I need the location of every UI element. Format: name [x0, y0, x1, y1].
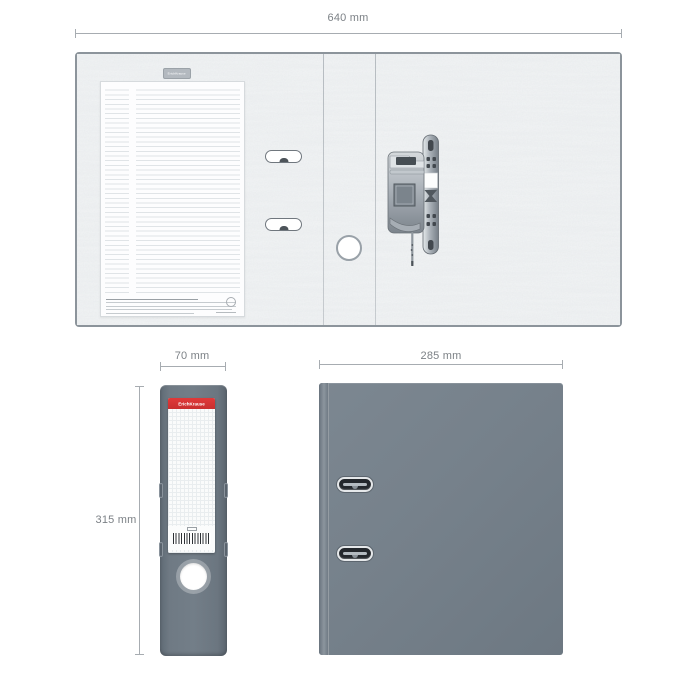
dimension-tick [135, 654, 144, 655]
fine-print [106, 299, 239, 314]
dimension-tick [225, 362, 226, 371]
spine-label-brand-text: ErichKrause [178, 401, 205, 406]
spine-view: ErichKrause [160, 385, 227, 656]
slot-mechanism-nub [352, 555, 358, 558]
spine-label-brand-band: ErichKrause [168, 398, 215, 409]
dimension-tick [160, 362, 161, 371]
cover-width-dimension-line [319, 364, 563, 365]
spine-notch [159, 542, 163, 557]
dimension-tick [135, 386, 144, 387]
cover-slot [265, 150, 302, 163]
height-dimension-label: 315 mm [96, 514, 137, 526]
cover-width-dimension-label: 285 mm [421, 350, 462, 362]
fine-print-line [106, 306, 236, 307]
lever-arch-mechanism-icon [379, 128, 445, 270]
slot-catch [279, 158, 288, 163]
barcode-zone [168, 526, 215, 550]
fine-print-line [106, 299, 198, 300]
slot-catch [279, 226, 288, 231]
dimension-tick [75, 29, 76, 38]
certification-mark-icon [226, 297, 236, 307]
height-dimension-line [139, 386, 140, 655]
spine-notch [224, 542, 228, 557]
finger-hole-icon [336, 235, 362, 261]
slot-mechanism-nub [352, 486, 358, 489]
fine-print-line [106, 309, 232, 310]
cover-slot [337, 546, 373, 561]
dimension-tick [562, 360, 563, 369]
brand-badge-label: ErichKrause [168, 72, 186, 75]
front-cover-view [319, 383, 563, 655]
fine-print-line [106, 302, 236, 303]
open-width-dimension-line [75, 33, 622, 34]
paper-sheet [100, 81, 245, 317]
brand-badge: ErichKrause [163, 68, 191, 79]
open-width-dimension-label: 640 mm [328, 12, 369, 24]
spine-width-dimension-label: 70 mm [175, 350, 210, 362]
dimension-tick [319, 360, 320, 369]
spine-width-dimension-line [160, 366, 226, 367]
barcode-icon [173, 533, 211, 544]
fine-print-line [106, 313, 194, 314]
front-spine-edge [319, 383, 329, 655]
finger-hole-icon [180, 563, 207, 590]
barcode-box [187, 527, 197, 531]
dimension-tick [621, 29, 622, 38]
spine-notch [224, 483, 228, 498]
website-text-line [216, 312, 236, 313]
spine-fold-line [375, 54, 376, 325]
cover-slot [337, 477, 373, 492]
cover-slot [265, 218, 302, 231]
opened-binder-view: ErichKrause [75, 52, 622, 327]
spine-fold-line [323, 54, 324, 325]
ruled-lines [105, 86, 240, 296]
product-dimensions-diagram: 640 mm ErichKrause [0, 0, 700, 700]
spine-notch [159, 483, 163, 498]
spine-label: ErichKrause [168, 398, 215, 553]
